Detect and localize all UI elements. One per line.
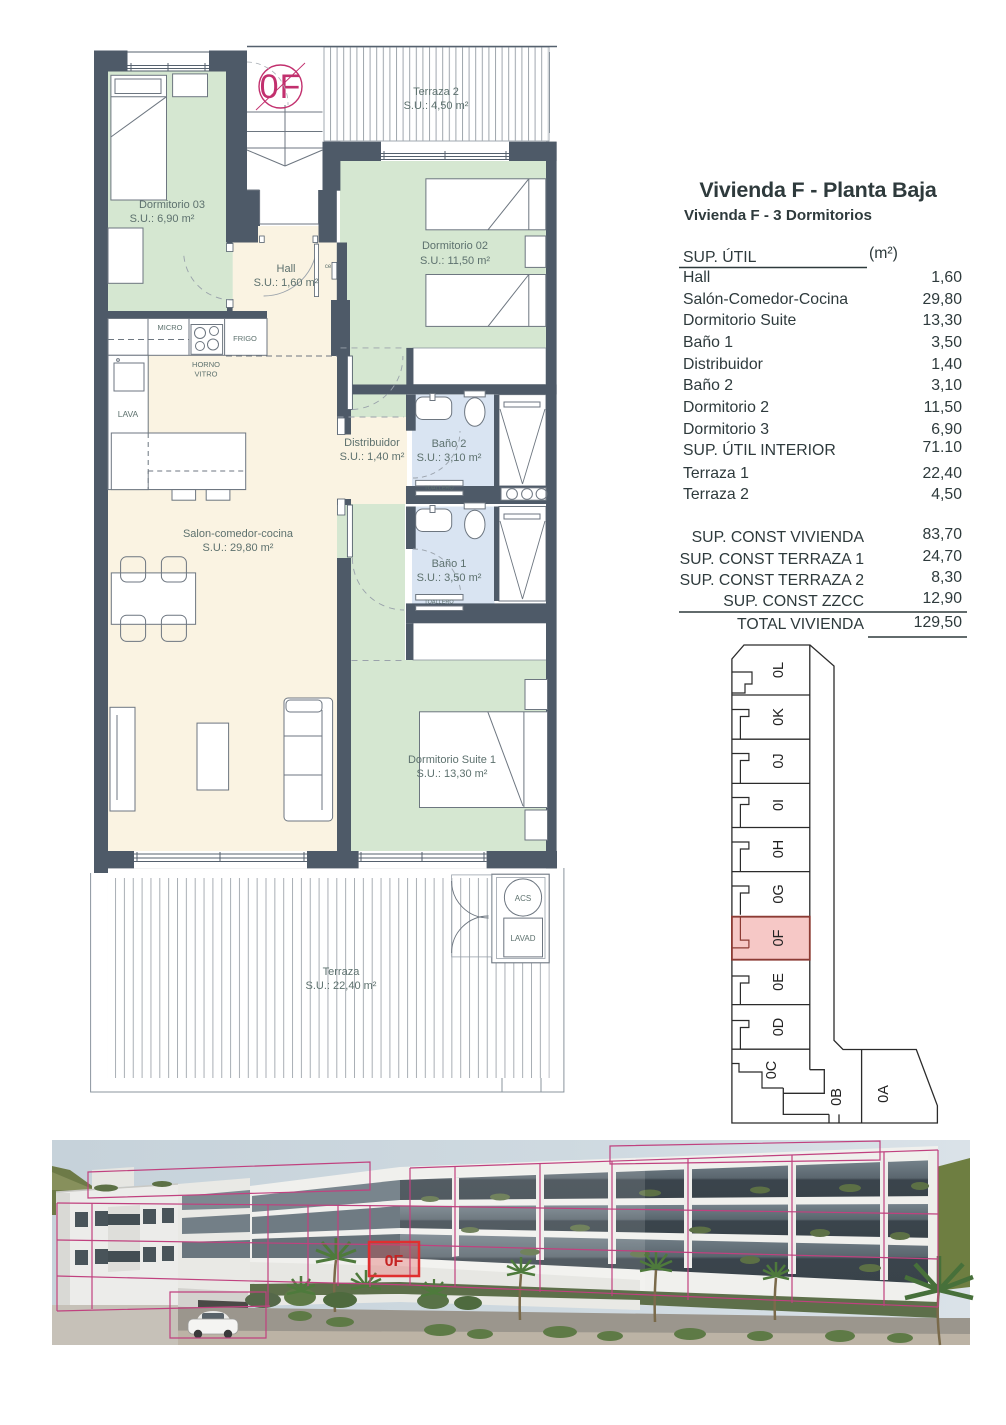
- svg-text:Vivienda F - Planta Baja: Vivienda F - Planta Baja: [699, 178, 938, 202]
- svg-text:0L: 0L: [771, 662, 787, 678]
- svg-text:S.U.: 3,10 m²: S.U.: 3,10 m²: [417, 452, 482, 464]
- svg-text:11,50: 11,50: [924, 399, 963, 416]
- svg-text:0F: 0F: [771, 929, 787, 946]
- svg-text:S.U.: 3,50 m²: S.U.: 3,50 m²: [417, 572, 482, 584]
- svg-text:S.U.: 22,40 m²: S.U.: 22,40 m²: [306, 980, 377, 992]
- svg-text:Dormitorio 03: Dormitorio 03: [139, 199, 205, 211]
- svg-text:0E: 0E: [771, 973, 787, 991]
- svg-text:Hall: Hall: [683, 269, 710, 286]
- svg-text:Baño 2: Baño 2: [432, 438, 467, 450]
- svg-text:S.U.: 13,30 m²: S.U.: 13,30 m²: [417, 768, 488, 780]
- svg-text:Dormitorio 2: Dormitorio 2: [683, 399, 769, 416]
- svg-text:S.U.: 11,50 m²: S.U.: 11,50 m²: [420, 255, 490, 267]
- svg-text:SUP. CONST TERRAZA 2: SUP. CONST TERRAZA 2: [680, 572, 864, 589]
- svg-text:Salon-comedor-cocina: Salon-comedor-cocina: [183, 528, 294, 540]
- svg-text:HORNO: HORNO: [192, 360, 220, 369]
- svg-text:SUP. CONST TERRAZA 1: SUP. CONST TERRAZA 1: [680, 551, 865, 568]
- svg-text:SUP. CONST ZZCC: SUP. CONST ZZCC: [723, 593, 864, 610]
- svg-text:24,70: 24,70: [922, 548, 962, 565]
- svg-text:83,70: 83,70: [922, 526, 962, 543]
- svg-text:22,40: 22,40: [922, 465, 962, 482]
- svg-text:0J: 0J: [771, 753, 787, 768]
- svg-text:0K: 0K: [771, 708, 787, 726]
- svg-text:29,80: 29,80: [922, 291, 962, 308]
- svg-text:Dormitorio Suite 1: Dormitorio Suite 1: [408, 754, 496, 766]
- svg-text:SUP. CONST VIVIENDA: SUP. CONST VIVIENDA: [692, 529, 865, 546]
- svg-text:1,60: 1,60: [931, 269, 962, 286]
- svg-text:3,10: 3,10: [931, 377, 962, 394]
- svg-text:ACS: ACS: [515, 894, 531, 903]
- svg-text:Terraza: Terraza: [323, 966, 361, 978]
- svg-text:TOALLERO: TOALLERO: [424, 486, 454, 492]
- svg-text:Baño 1: Baño 1: [683, 334, 733, 351]
- svg-text:(m²): (m²): [869, 245, 898, 262]
- svg-text:0G: 0G: [771, 884, 787, 903]
- svg-text:Dormitorio 02: Dormitorio 02: [422, 240, 488, 252]
- svg-text:S.U.: 29,80 m²: S.U.: 29,80 m²: [203, 542, 274, 554]
- svg-text:129,50: 129,50: [914, 614, 963, 631]
- svg-text:ce: ce: [325, 264, 332, 270]
- svg-text:Hall: Hall: [277, 263, 296, 275]
- svg-text:0A: 0A: [876, 1085, 892, 1103]
- svg-text:Terraza 2: Terraza 2: [683, 486, 749, 503]
- svg-text:Dormitorio 3: Dormitorio 3: [683, 421, 769, 438]
- svg-text:4,50: 4,50: [931, 486, 962, 503]
- svg-text:Vivienda F - 3 Dormitorios: Vivienda F - 3 Dormitorios: [684, 207, 872, 224]
- svg-text:0H: 0H: [771, 840, 787, 859]
- svg-text:8,30: 8,30: [931, 569, 962, 586]
- svg-text:Salón-Comedor-Cocina: Salón-Comedor-Cocina: [683, 291, 848, 308]
- svg-text:Terraza 1: Terraza 1: [683, 465, 749, 482]
- svg-text:S.U.: 6,90 m²: S.U.: 6,90 m²: [130, 213, 195, 225]
- svg-text:S.U.: 1,40 m²: S.U.: 1,40 m²: [340, 451, 405, 463]
- svg-text:0I: 0I: [771, 799, 787, 811]
- svg-text:SUP. ÚTIL INTERIOR: SUP. ÚTIL INTERIOR: [683, 440, 836, 459]
- svg-text:0F: 0F: [385, 1253, 404, 1270]
- svg-text:0B: 0B: [829, 1088, 845, 1106]
- svg-text:6,90: 6,90: [931, 421, 962, 438]
- svg-text:S.U.: 1,60 m²: S.U.: 1,60 m²: [254, 277, 319, 289]
- svg-text:Terraza 2: Terraza 2: [413, 86, 459, 98]
- svg-text:TOALLERO: TOALLERO: [424, 600, 454, 606]
- svg-text:LAVAD: LAVAD: [510, 934, 535, 943]
- svg-text:0F: 0F: [260, 68, 302, 106]
- svg-text:Distribuidor: Distribuidor: [683, 356, 763, 373]
- svg-text:SUP. ÚTIL: SUP. ÚTIL: [683, 247, 757, 266]
- svg-text:Baño 1: Baño 1: [432, 558, 467, 570]
- svg-text:71.10: 71.10: [922, 439, 962, 456]
- svg-text:Baño 2: Baño 2: [683, 377, 733, 394]
- svg-text:FRIGO: FRIGO: [233, 334, 257, 343]
- svg-text:13,30: 13,30: [922, 312, 962, 329]
- svg-text:MICRO: MICRO: [158, 323, 183, 332]
- svg-text:LAVA: LAVA: [118, 409, 139, 419]
- svg-text:Dormitorio Suite: Dormitorio Suite: [683, 312, 796, 329]
- svg-text:12,90: 12,90: [922, 590, 962, 607]
- svg-text:3,50: 3,50: [931, 334, 962, 351]
- svg-text:0C: 0C: [764, 1061, 780, 1080]
- svg-text:TOTAL VIVIENDA: TOTAL VIVIENDA: [737, 616, 864, 633]
- svg-text:S.U.: 4,50 m²: S.U.: 4,50 m²: [404, 100, 469, 112]
- svg-text:0D: 0D: [771, 1018, 787, 1037]
- svg-text:Distribuidor: Distribuidor: [344, 437, 400, 449]
- svg-text:VITRO: VITRO: [195, 370, 218, 379]
- svg-text:1,40: 1,40: [931, 356, 962, 373]
